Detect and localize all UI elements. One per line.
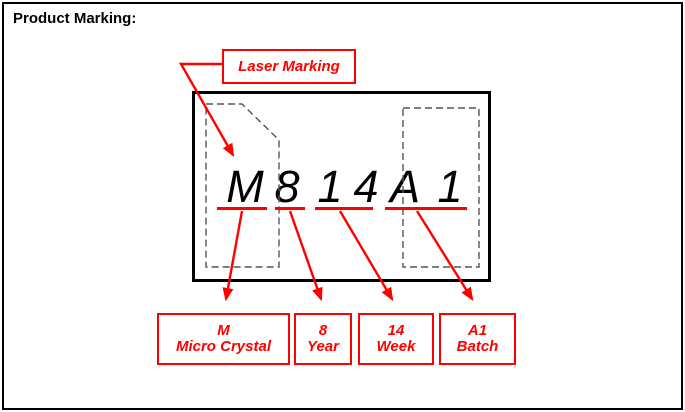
marking-char-batch-digit: 1 bbox=[437, 164, 462, 209]
legend-box-week: 14 Week bbox=[358, 313, 434, 365]
page-title: Product Marking: bbox=[13, 10, 136, 27]
marking-char-year: 8 bbox=[274, 164, 299, 209]
product-marking-figure: Product Marking: Laser Marking M 8 1 4 A… bbox=[0, 0, 685, 412]
legend-box-year: 8 Year bbox=[294, 313, 352, 365]
marking-char-batch-letter: A bbox=[390, 164, 420, 209]
legend-box-batch: A1 Batch bbox=[439, 313, 516, 365]
legend-meaning: Year bbox=[307, 339, 339, 355]
legend-code: A1 bbox=[468, 323, 487, 339]
marking-char-manufacturer: M bbox=[226, 164, 264, 209]
legend-meaning: Week bbox=[377, 339, 416, 355]
laser-marking-callout: Laser Marking bbox=[222, 49, 356, 84]
legend-meaning: Batch bbox=[457, 339, 499, 355]
laser-marking-label: Laser Marking bbox=[238, 58, 340, 75]
legend-box-manufacturer: M Micro Crystal bbox=[157, 313, 290, 365]
marking-char-week-tens: 1 bbox=[317, 164, 342, 209]
marking-char-week-units: 4 bbox=[353, 164, 378, 209]
legend-code: M bbox=[217, 323, 230, 339]
legend-code: 14 bbox=[388, 323, 405, 339]
legend-code: 8 bbox=[319, 323, 327, 339]
legend-meaning: Micro Crystal bbox=[176, 339, 271, 355]
